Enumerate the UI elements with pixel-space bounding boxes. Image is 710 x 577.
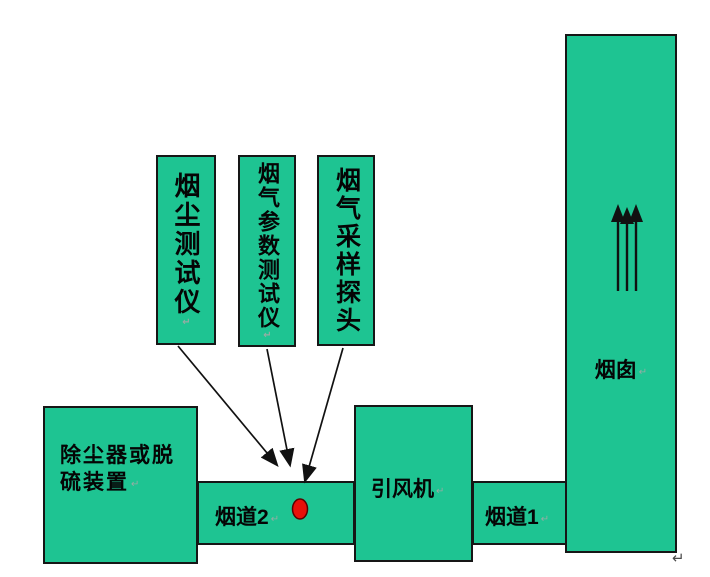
sampling-arrow-from-parameter-tester [267, 349, 290, 465]
duct1-text: 烟道1 [485, 506, 539, 529]
diagram-canvas: 烟尘测试仪↵ 烟气参数测试仪↵ 烟气采样探头 烟道2↵ 烟道1↵ 除尘器或脱 硫… [0, 0, 710, 577]
chimney-box: 烟囱↵ [565, 34, 677, 553]
chimney-text: 烟囱 [595, 359, 637, 382]
induced-draft-fan-text: 引风机 [371, 478, 434, 501]
dust-remover-label: 除尘器或脱 硫装置↵ [60, 442, 175, 498]
flue-gas-sampling-probe-text: 烟气采样探头 [333, 167, 361, 335]
paragraph-return-mark: ↵ [672, 549, 685, 567]
smoke-dust-tester-text: 烟尘测试仪 [171, 172, 201, 317]
paragraph-mark-icon: ↵ [131, 479, 141, 490]
flue-gas-sampling-probe-box: 烟气采样探头 [317, 155, 375, 346]
dust-remover-box: 除尘器或脱 硫装置↵ [43, 406, 198, 564]
smoke-dust-tester-box: 烟尘测试仪↵ [156, 155, 216, 345]
induced-draft-fan-box: 引风机↵ [354, 405, 473, 562]
flue-gas-sampling-probe-label: 烟气采样探头 [334, 167, 359, 335]
paragraph-mark-icon: ↵ [271, 514, 279, 525]
paragraph-mark-icon: ↵ [181, 317, 192, 328]
chimney-label: 烟囱↵ [567, 354, 675, 384]
flue-gas-parameter-tester-label: 烟气参数测试仪↵ [256, 162, 278, 341]
paragraph-mark-icon: ↵ [541, 514, 549, 525]
induced-draft-fan-label: 引风机↵ [371, 473, 444, 503]
sampling-arrow-from-probe [305, 348, 343, 481]
duct2-label: 烟道2↵ [215, 501, 279, 531]
smoke-dust-tester-label: 烟尘测试仪↵ [173, 172, 199, 328]
flue-gas-parameter-tester-text: 烟气参数测试仪 [255, 162, 280, 330]
flue-gas-parameter-tester-box: 烟气参数测试仪↵ [238, 155, 296, 347]
dust-remover-label-line1: 除尘器或脱 [60, 442, 175, 469]
duct1-box: 烟道1↵ [472, 481, 567, 545]
dust-remover-label-line2: 硫装置↵ [60, 469, 175, 498]
duct1-label: 烟道1↵ [485, 501, 549, 531]
duct2-text: 烟道2 [215, 506, 269, 529]
duct2-box: 烟道2↵ [197, 481, 355, 545]
paragraph-mark-icon: ↵ [262, 330, 273, 341]
paragraph-mark-icon: ↵ [436, 486, 444, 497]
paragraph-mark-icon: ↵ [639, 367, 647, 378]
